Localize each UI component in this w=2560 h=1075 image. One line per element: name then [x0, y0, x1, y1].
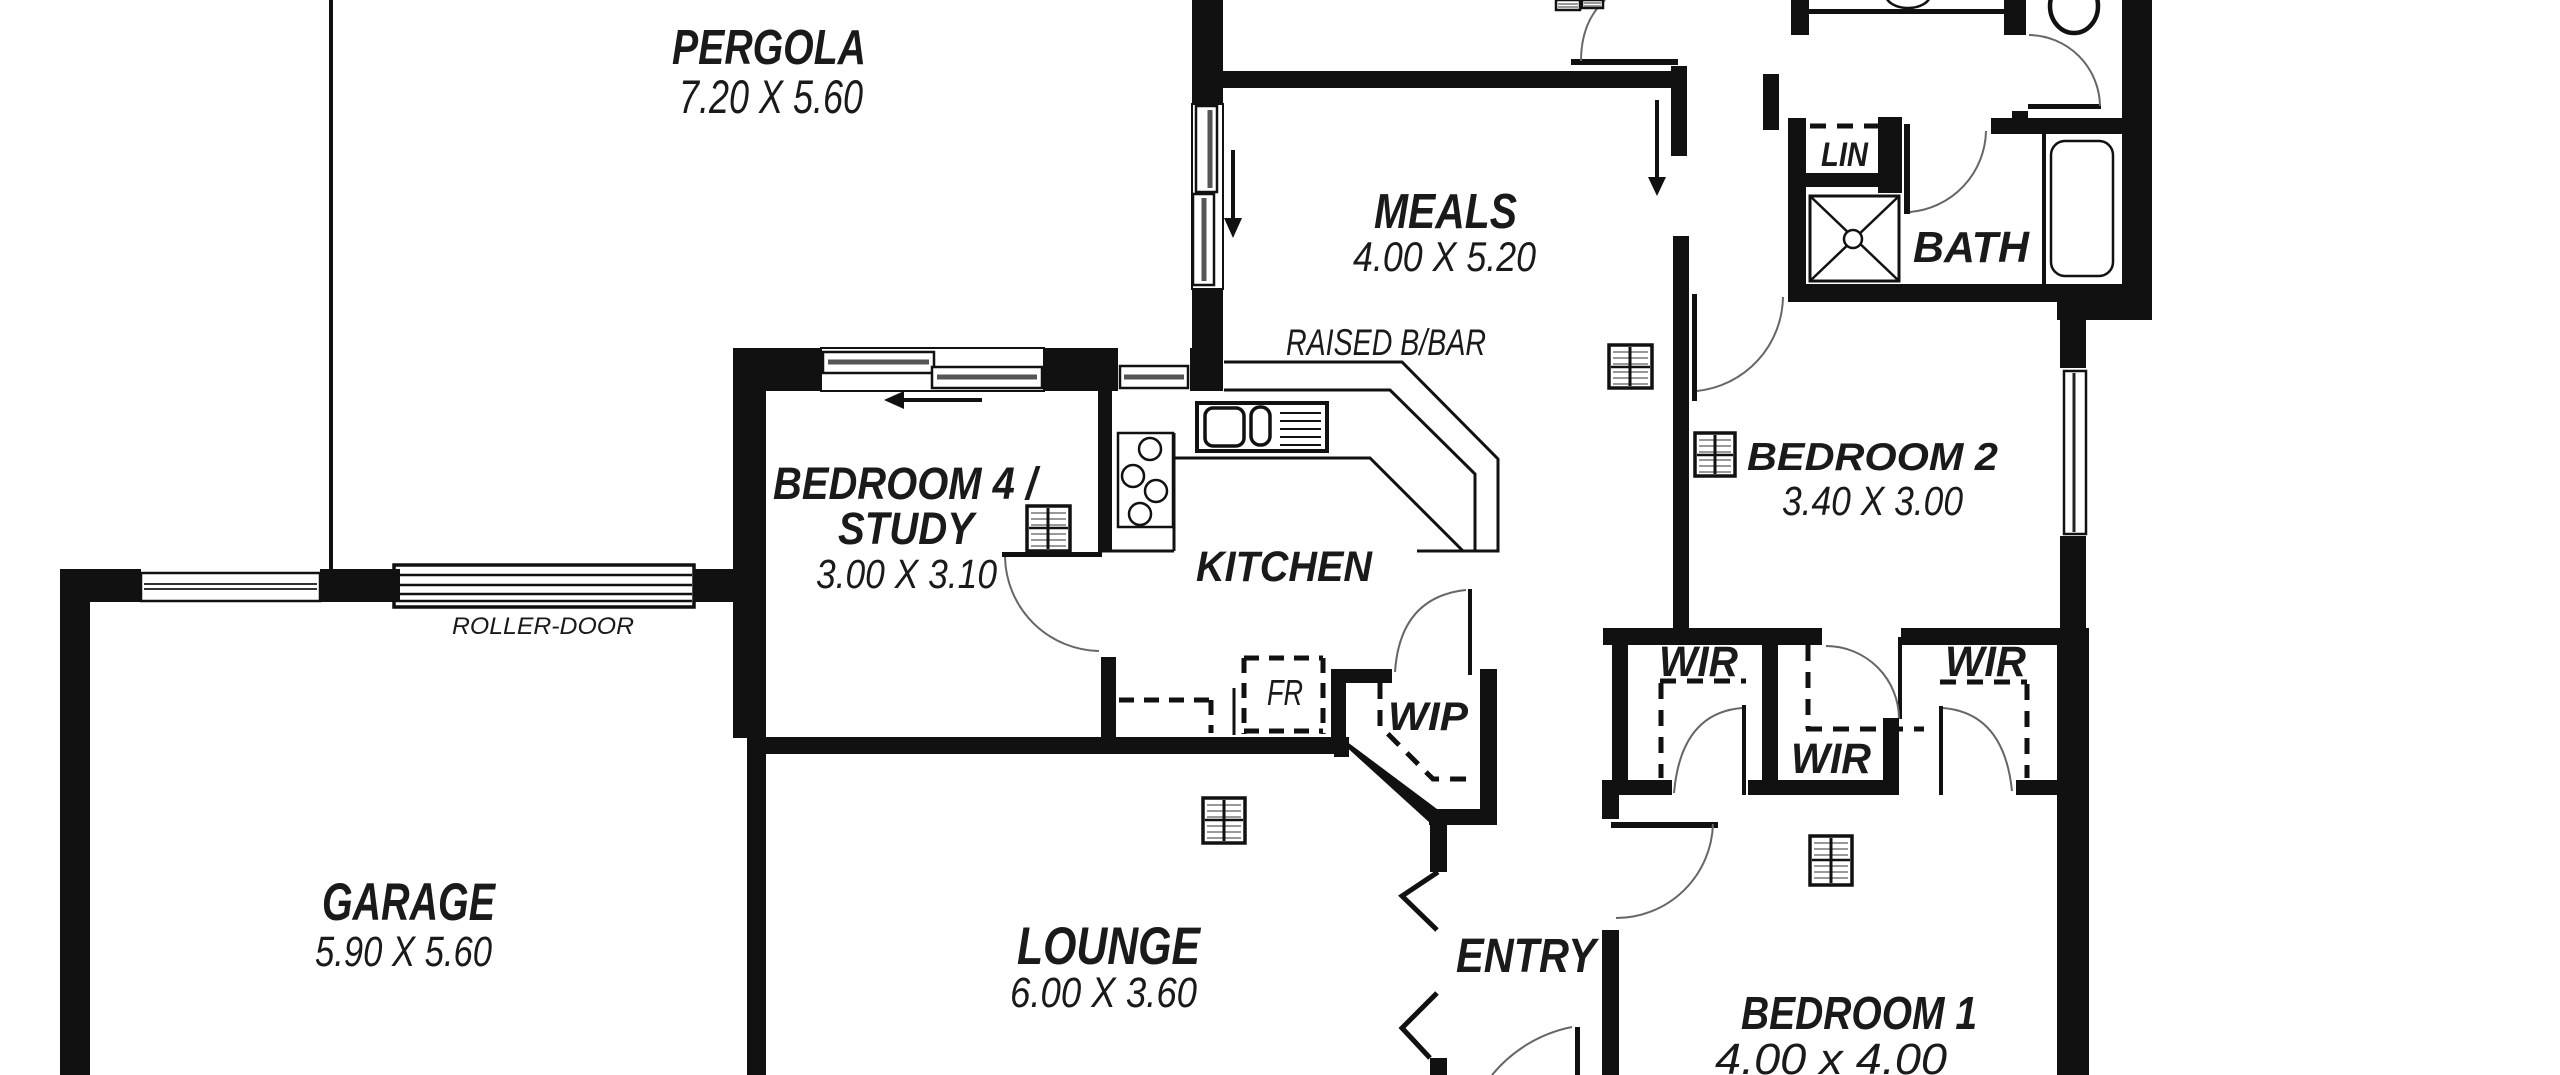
svg-text:PERGOLA: PERGOLA — [672, 21, 866, 75]
svg-text:BEDROOM 4 /: BEDROOM 4 / — [773, 458, 1041, 509]
svg-text:WIR: WIR — [1791, 735, 1871, 783]
svg-text:5.90 X 5.60: 5.90 X 5.60 — [315, 928, 492, 976]
svg-text:LOUNGE: LOUNGE — [1017, 917, 1201, 976]
svg-text:KITCHEN: KITCHEN — [1196, 543, 1373, 591]
svg-text:ENTRY: ENTRY — [1456, 930, 1599, 983]
svg-text:4.00 X 5.20: 4.00 X 5.20 — [1353, 233, 1537, 280]
svg-text:4.00 x 4.00: 4.00 x 4.00 — [1715, 1035, 1948, 1075]
svg-text:6.00 X 3.60: 6.00 X 3.60 — [1010, 969, 1197, 1017]
svg-text:GARAGE: GARAGE — [322, 873, 496, 932]
svg-text:BEDROOM 1: BEDROOM 1 — [1741, 987, 1977, 1039]
svg-text:WIR: WIR — [1945, 638, 2026, 686]
svg-text:7.20 X 5.60: 7.20 X 5.60 — [679, 70, 863, 123]
svg-text:RAISED B/BAR: RAISED B/BAR — [1286, 322, 1486, 363]
svg-text:MEALS: MEALS — [1374, 185, 1517, 239]
svg-text:FR: FR — [1267, 672, 1303, 713]
svg-text:BEDROOM 2: BEDROOM 2 — [1747, 436, 1998, 479]
svg-text:3.40 X 3.00: 3.40 X 3.00 — [1782, 478, 1963, 524]
svg-text:3.00 X 3.10: 3.00 X 3.10 — [816, 551, 997, 597]
svg-text:WIP: WIP — [1388, 695, 1468, 739]
svg-text:BATH: BATH — [1913, 223, 2030, 272]
svg-text:LIN: LIN — [1821, 136, 1869, 174]
svg-text:ROLLER-DOOR: ROLLER-DOOR — [452, 613, 634, 640]
svg-text:STUDY: STUDY — [838, 503, 978, 554]
